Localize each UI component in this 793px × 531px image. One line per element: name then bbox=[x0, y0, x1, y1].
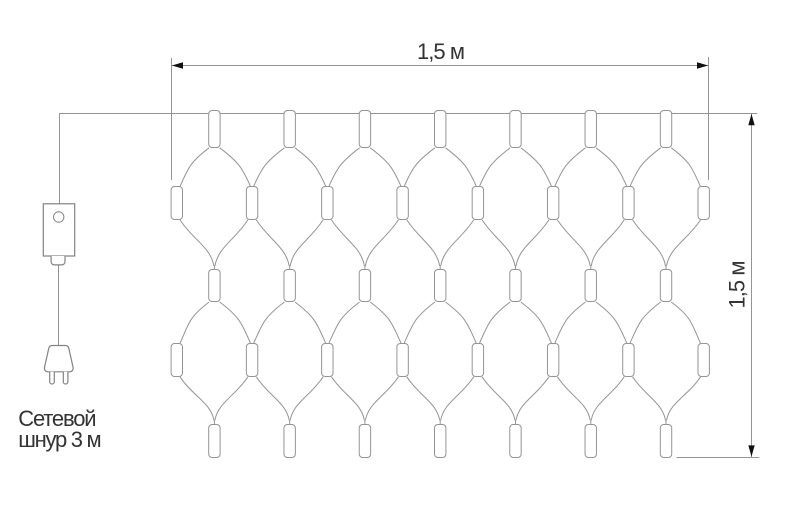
svg-text:1,5 м: 1,5 м bbox=[725, 261, 750, 308]
svg-text:1,5 м: 1,5 м bbox=[417, 39, 464, 64]
svg-text:шнур 3 м: шнур 3 м bbox=[18, 427, 100, 452]
